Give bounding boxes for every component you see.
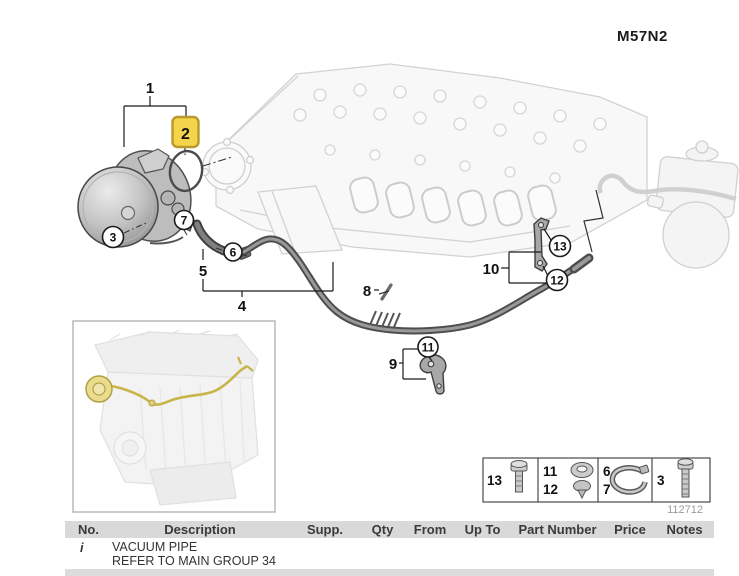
legend-number-6[interactable]: 6: [603, 464, 611, 479]
row-qty: [360, 538, 405, 568]
engine-location-inset: [73, 321, 275, 512]
col-header-qty: Qty: [360, 522, 405, 537]
row-description-line2: REFER TO MAIN GROUP 34: [112, 555, 290, 569]
diagram-number: 112712: [667, 504, 703, 516]
svg-text:13: 13: [553, 240, 567, 254]
col-header-from: From: [405, 522, 455, 537]
vacuum-hose-part5[interactable]: [197, 224, 224, 251]
parts-table: No. Description Supp. Qty From Up To Par…: [65, 521, 714, 576]
legend-number-13[interactable]: 13: [487, 473, 503, 488]
row-part-number: [510, 538, 605, 568]
callout-2-highlighted[interactable]: 2: [173, 117, 199, 147]
table-row: i VACUUM PIPE REFER TO MAIN GROUP 34: [65, 538, 714, 568]
row-upto: [455, 538, 510, 568]
cylinder-head-ghost-art: [202, 64, 648, 257]
pipe-bracket-part9[interactable]: [420, 355, 446, 394]
callout-9[interactable]: 9: [389, 356, 397, 373]
col-header-price: Price: [605, 522, 655, 537]
svg-text:7: 7: [181, 214, 188, 228]
svg-text:3: 3: [110, 231, 117, 245]
row-description: VACUUM PIPE REFER TO MAIN GROUP 34: [110, 538, 290, 568]
parts-diagram-canvas: 1 2 3 7 6 5 4 8 9 11: [0, 0, 739, 520]
legend-number-12[interactable]: 12: [543, 482, 558, 497]
svg-text:12: 12: [550, 274, 564, 288]
legend-number-11[interactable]: 11: [543, 464, 558, 479]
row-supp: [290, 538, 360, 568]
pin-part8[interactable]: [379, 285, 391, 299]
row-notes: [655, 538, 714, 568]
col-header-description: Description: [110, 522, 290, 537]
parts-table-header: No. Description Supp. Qty From Up To Par…: [65, 521, 714, 538]
col-header-no: No.: [65, 522, 110, 537]
callout-12[interactable]: 12: [547, 270, 568, 291]
row-price: [605, 538, 655, 568]
callout-4-5-bracket: [203, 249, 333, 297]
callout-5[interactable]: 5: [199, 263, 207, 280]
svg-text:6: 6: [230, 246, 237, 260]
callout-13[interactable]: 13: [550, 236, 571, 257]
row-no: i: [65, 538, 110, 568]
callout-3[interactable]: 3: [103, 227, 124, 248]
col-header-upto: Up To: [455, 522, 510, 537]
callout-1[interactable]: 1: [146, 80, 154, 97]
callout-4[interactable]: 4: [238, 298, 247, 315]
vacuum-pump-part[interactable]: [78, 138, 204, 253]
svg-text:2: 2: [181, 126, 190, 143]
legend-number-3[interactable]: 3: [657, 473, 665, 488]
callout-8[interactable]: 8: [363, 283, 371, 300]
row-description-line1: VACUUM PIPE: [112, 541, 290, 555]
col-header-part-number: Part Number: [510, 522, 605, 537]
svg-text:11: 11: [422, 341, 435, 355]
col-header-supp: Supp.: [290, 522, 360, 537]
callout-10[interactable]: 10: [483, 261, 500, 278]
col-header-notes: Notes: [655, 522, 714, 537]
callout-11[interactable]: 11: [418, 337, 438, 357]
legend-number-7[interactable]: 7: [603, 482, 611, 497]
row-from: [405, 538, 455, 568]
fastener-legend: 13 11 12 6 7 3: [483, 458, 710, 502]
